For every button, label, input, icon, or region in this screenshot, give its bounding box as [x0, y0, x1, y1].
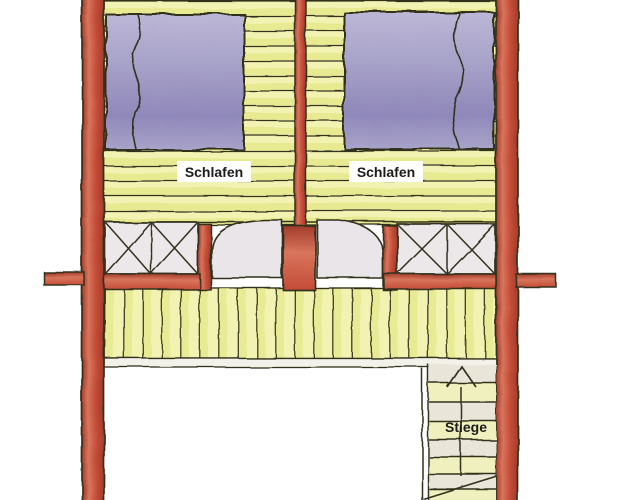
- stair-label: Stiege: [445, 419, 487, 435]
- gallery-floor: [104, 288, 496, 358]
- wall-stub-left: [44, 272, 84, 285]
- right-wall: [496, 0, 518, 500]
- railing-right: [397, 224, 495, 274]
- floor-plan-svg: Schlafen Schlafen Stiege: [0, 0, 622, 500]
- bed-left: [106, 14, 244, 150]
- sill-band-right: [384, 274, 496, 289]
- sill-band-left: [104, 274, 200, 289]
- bed-right: [344, 12, 494, 149]
- wall-stub-right: [516, 274, 556, 287]
- middle-column: [283, 226, 315, 290]
- bedroom-left-label: Schlafen: [185, 164, 243, 180]
- middle-wall: [295, 0, 306, 228]
- railing-left: [105, 222, 198, 274]
- floor-plan-figure: Schlafen Schlafen Stiege: [0, 0, 622, 500]
- bedroom-right-label: Schlafen: [357, 164, 415, 180]
- left-wall: [82, 0, 104, 500]
